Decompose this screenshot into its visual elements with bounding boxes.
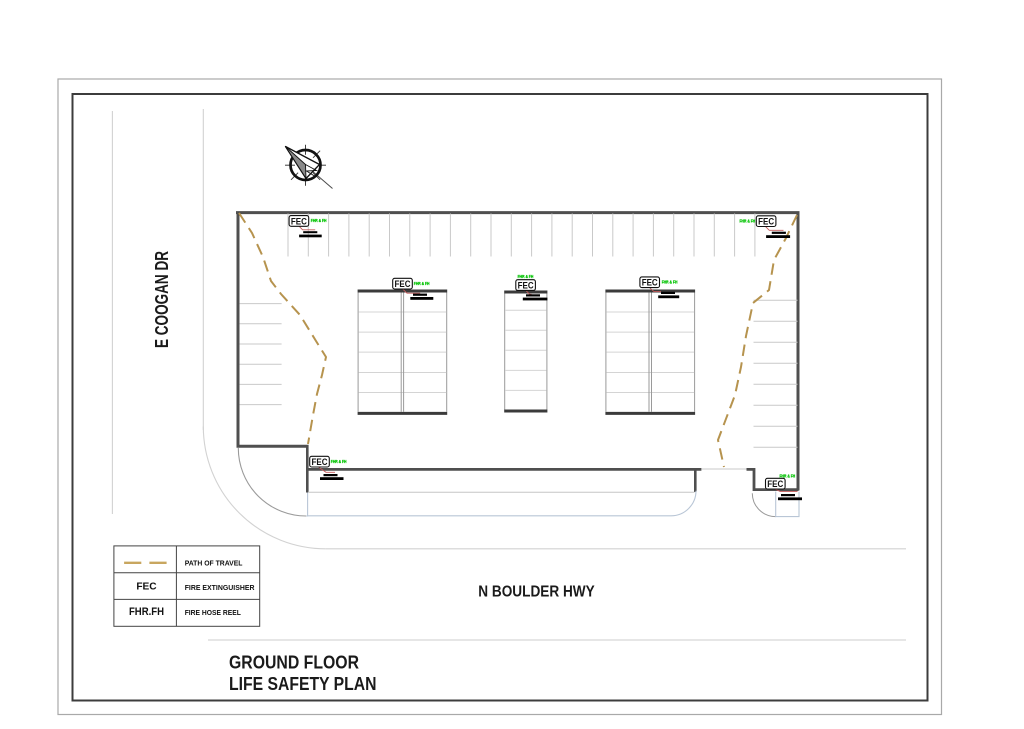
- svg-text:FHR & FH: FHR & FH: [740, 218, 756, 223]
- svg-text:FHR & FH: FHR & FH: [780, 473, 796, 478]
- svg-text:FEC: FEC: [758, 217, 774, 227]
- svg-text:PATH OF TRAVEL: PATH OF TRAVEL: [185, 559, 243, 568]
- svg-text:GROUND FLOOR: GROUND FLOOR: [229, 653, 359, 673]
- svg-text:FEC: FEC: [395, 279, 411, 289]
- svg-text:FHR & FH: FHR & FH: [518, 274, 534, 279]
- svg-text:E COOGAN DR: E COOGAN DR: [151, 251, 172, 348]
- svg-text:LIFE SAFETY PLAN: LIFE SAFETY PLAN: [229, 674, 377, 694]
- svg-text:FEC: FEC: [642, 278, 658, 288]
- svg-text:FEC: FEC: [518, 280, 534, 290]
- svg-text:FHR & FH: FHR & FH: [311, 218, 327, 223]
- svg-text:FHR & FH: FHR & FH: [331, 459, 347, 464]
- svg-text:FEC: FEC: [136, 582, 157, 593]
- svg-text:FHR & FH: FHR & FH: [662, 280, 678, 285]
- svg-text:FIRE EXTINGUISHER: FIRE EXTINGUISHER: [185, 583, 255, 592]
- svg-text:FEC: FEC: [312, 457, 328, 467]
- svg-text:FIRE HOSE REEL: FIRE HOSE REEL: [185, 608, 242, 617]
- svg-text:FEC: FEC: [767, 479, 783, 489]
- svg-text:N BOULDER HWY: N BOULDER HWY: [478, 584, 595, 601]
- svg-text:FHR.FH: FHR.FH: [129, 606, 164, 618]
- svg-text:FEC: FEC: [291, 216, 307, 226]
- svg-text:FHR & FH: FHR & FH: [414, 281, 430, 286]
